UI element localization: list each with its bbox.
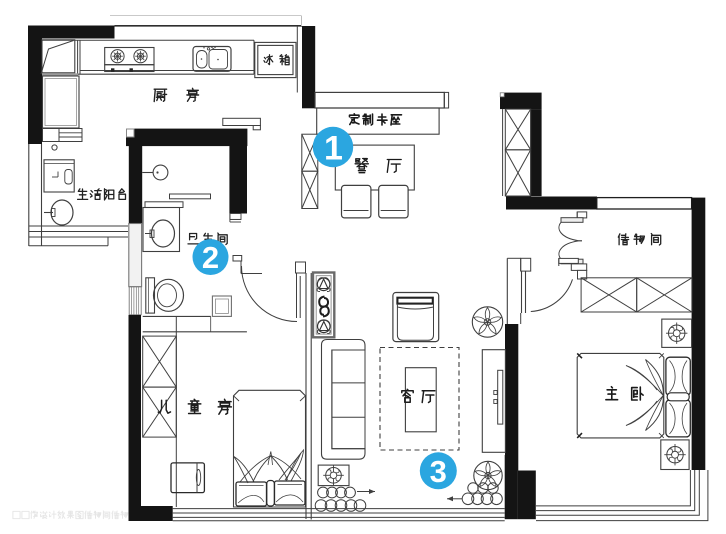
- svg-text:2: 2: [202, 240, 219, 275]
- svg-text:1: 1: [324, 130, 343, 168]
- svg-text:3: 3: [430, 454, 447, 489]
